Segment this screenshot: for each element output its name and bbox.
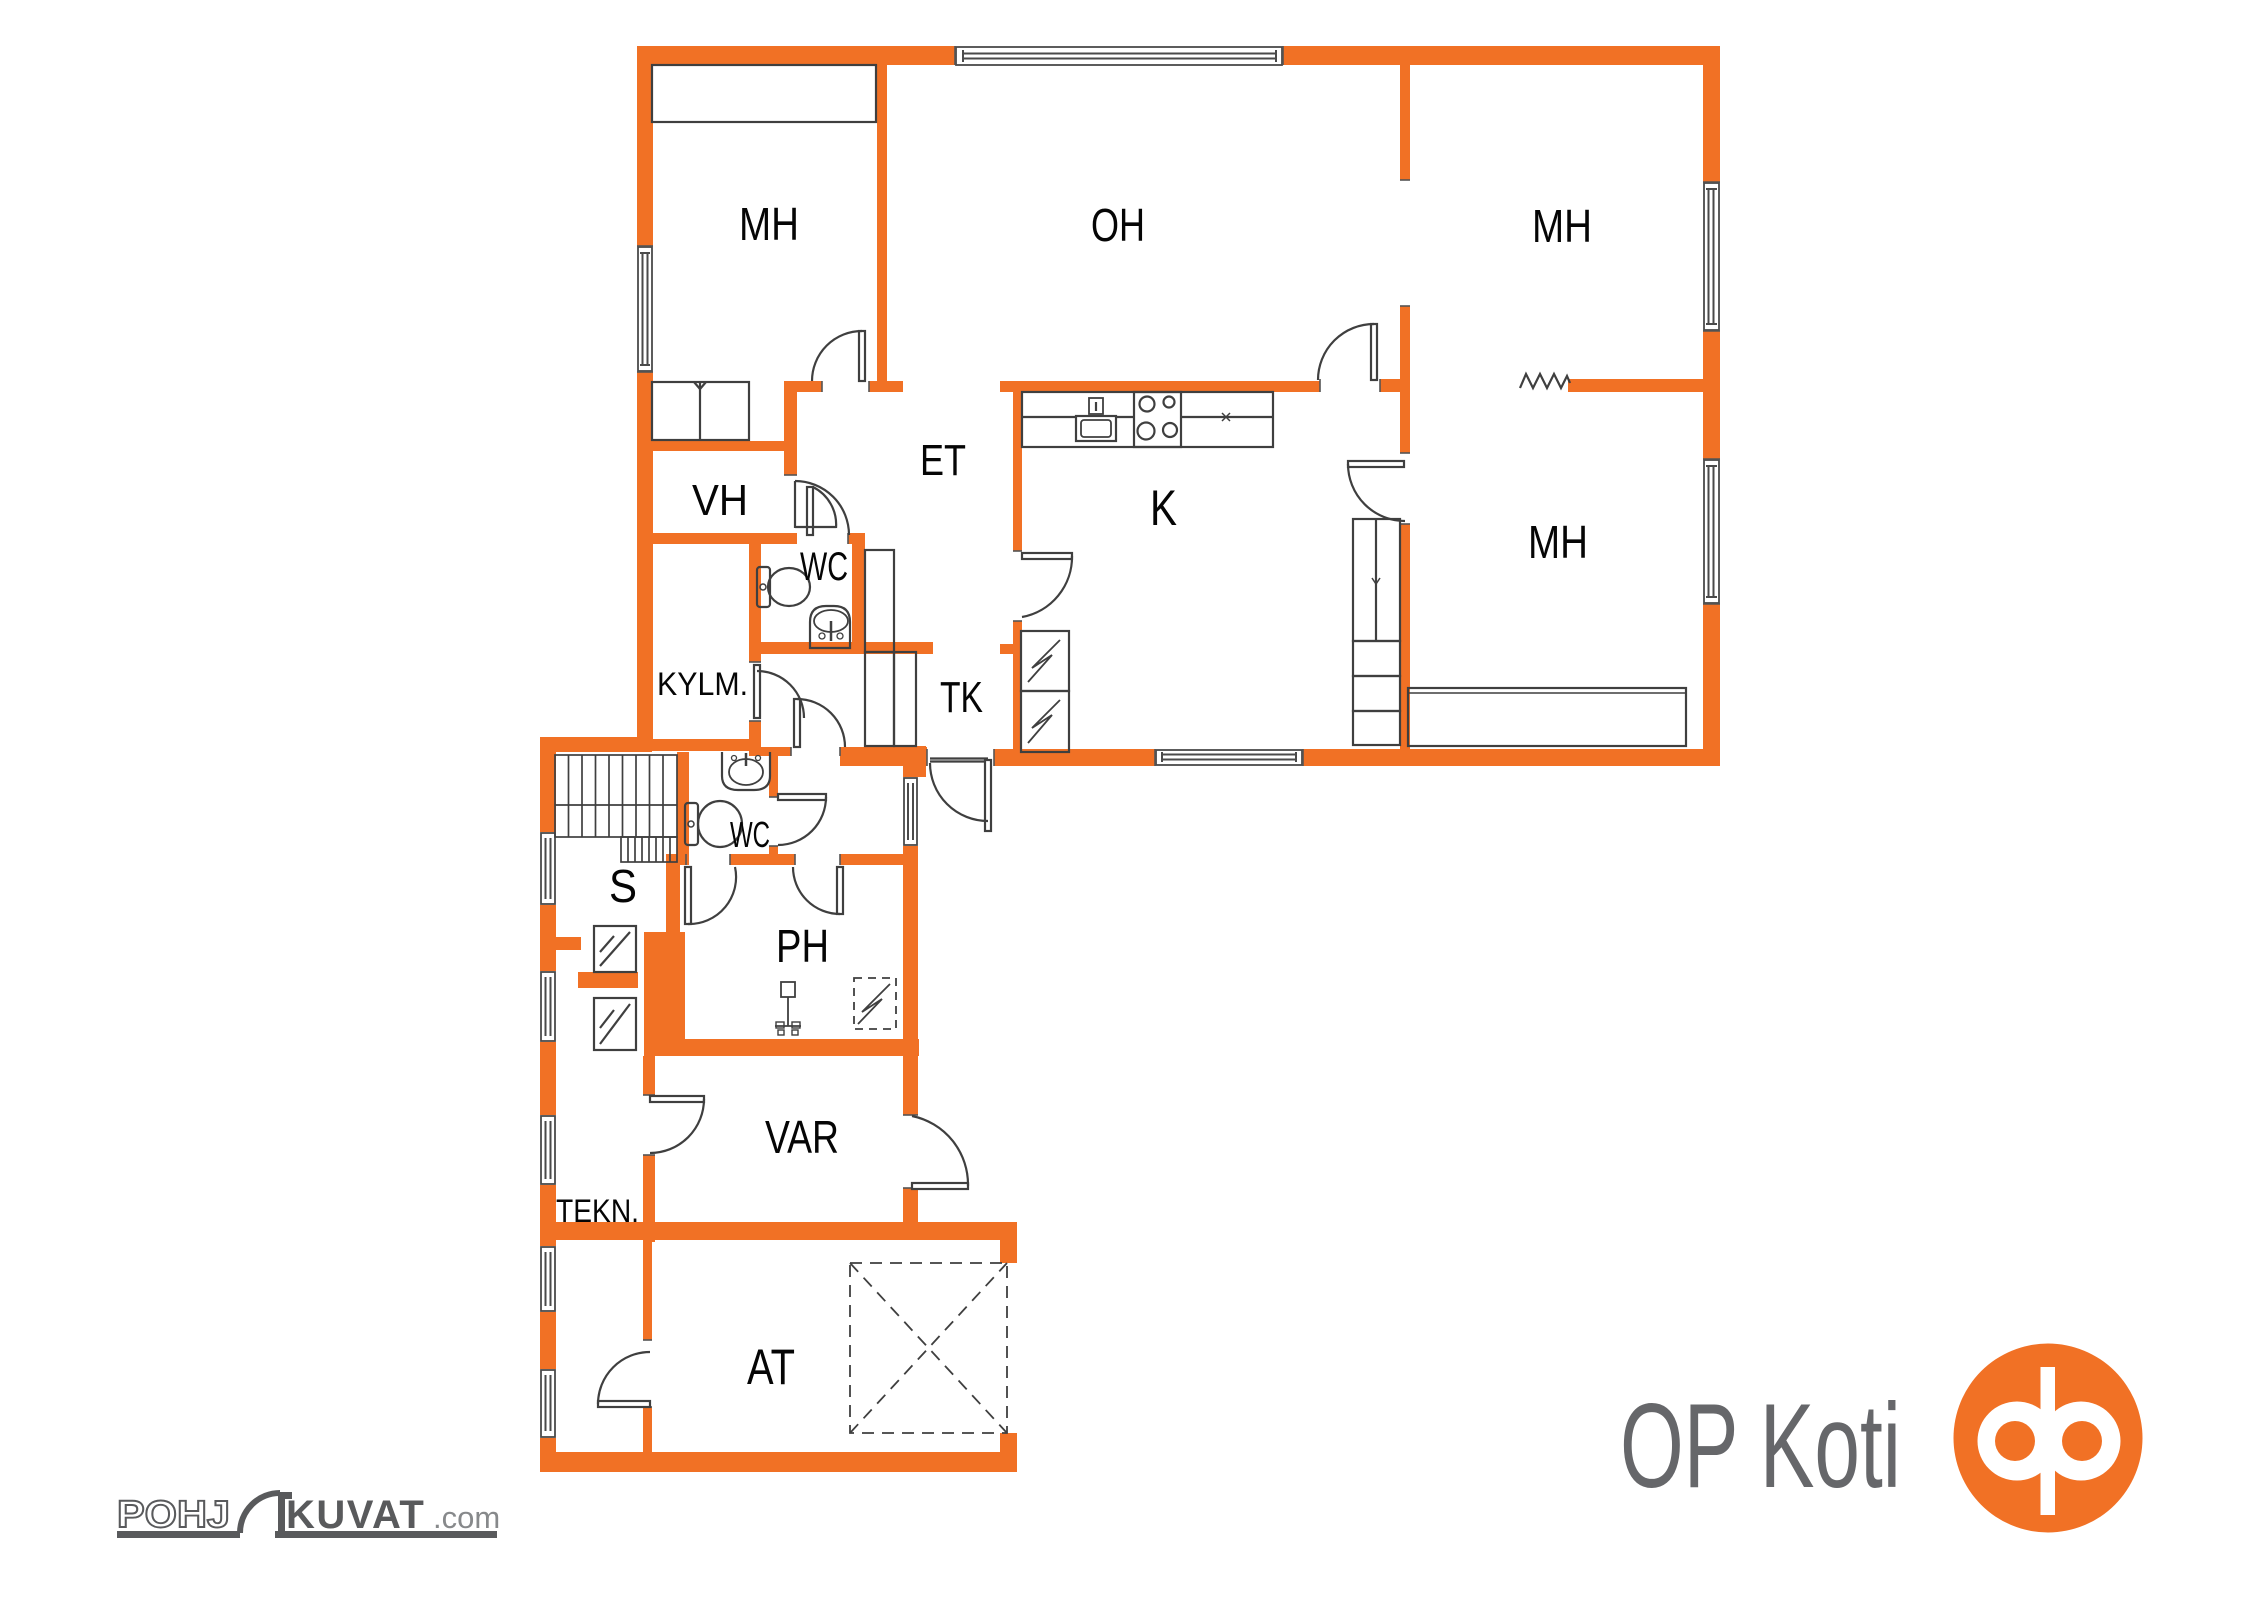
- svg-text:KUVAT: KUVAT: [286, 1493, 425, 1537]
- svg-text:WC: WC: [800, 545, 848, 589]
- svg-text:TK: TK: [940, 673, 983, 722]
- svg-text:S: S: [609, 860, 637, 912]
- svg-text:OH: OH: [1091, 199, 1145, 251]
- svg-text:WC: WC: [730, 814, 770, 855]
- svg-text:MH: MH: [739, 198, 799, 250]
- svg-text:TEKN.: TEKN.: [556, 1193, 639, 1229]
- svg-text:VH: VH: [692, 476, 748, 525]
- svg-text:AT: AT: [747, 1339, 795, 1395]
- svg-text:MH: MH: [1528, 516, 1588, 568]
- svg-text:ET: ET: [920, 436, 966, 485]
- svg-text:POHJ: POHJ: [117, 1494, 230, 1536]
- svg-text:MH: MH: [1532, 200, 1592, 252]
- svg-text:OP Koti: OP Koti: [1620, 1379, 1901, 1513]
- svg-text:.com: .com: [433, 1500, 500, 1535]
- svg-text:VAR: VAR: [765, 1111, 839, 1163]
- svg-text:K: K: [1150, 480, 1177, 536]
- svg-text:PH: PH: [776, 920, 829, 972]
- svg-text:KYLM.: KYLM.: [657, 666, 748, 702]
